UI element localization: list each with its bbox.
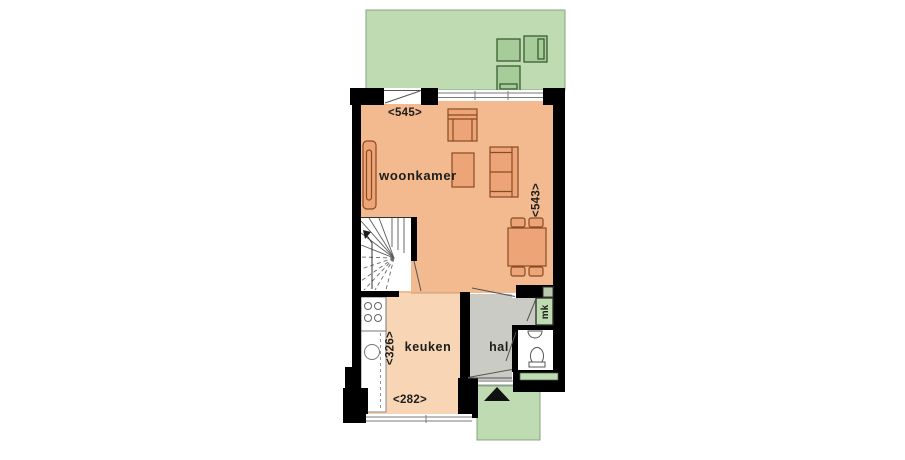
wall-frontdoor-left [458,378,478,418]
floorplan-drawing: woonkamer keuken hal mk <545> <543> <326… [0,0,905,460]
facade-green-strip [520,373,558,380]
entrance-area [477,386,540,440]
wc-cistern [529,362,545,367]
garden-table [497,39,520,61]
wall-left-step [345,367,358,389]
wall-toilet-top [516,325,553,330]
wall-stairs-right [411,217,417,261]
wall-left [352,105,361,388]
stairs-floor [361,217,411,291]
window-top-gap [438,90,543,101]
armchair [448,109,477,141]
dim-kitchen-depth: <326> [385,331,397,365]
dim-top-width: <545> [388,107,422,119]
garden-terrace [366,10,565,92]
wall-kitchen-hall [460,292,470,382]
dining-chair [511,218,525,227]
label-keuken: keuken [405,340,452,354]
label-woonkamer: woonkamer [378,168,457,183]
floorplan: woonkamer keuken hal mk <545> <543> <326… [0,0,905,460]
toilet-room [518,330,553,370]
staircase [361,217,411,291]
wall-toilet-left [512,325,518,372]
window-bottom-gap [366,414,472,423]
wall-stairs-bottom [361,291,399,297]
label-hal: hal [489,340,509,354]
dining-chair [529,267,543,276]
label-mk: mk [540,304,551,319]
dining-table [508,228,546,266]
radiator [363,141,376,209]
dining-chair [529,218,543,227]
wall-top-left [350,88,384,105]
wall-right [553,88,565,392]
mk-corner-box [543,287,553,297]
wall-bottom-left [343,388,368,423]
entrance-path [477,386,540,440]
dining-chair [511,267,525,276]
dim-right-depth: <543> [531,183,543,217]
dim-kitchen-width: <282> [393,394,427,406]
wall-top-pillar [421,88,438,105]
